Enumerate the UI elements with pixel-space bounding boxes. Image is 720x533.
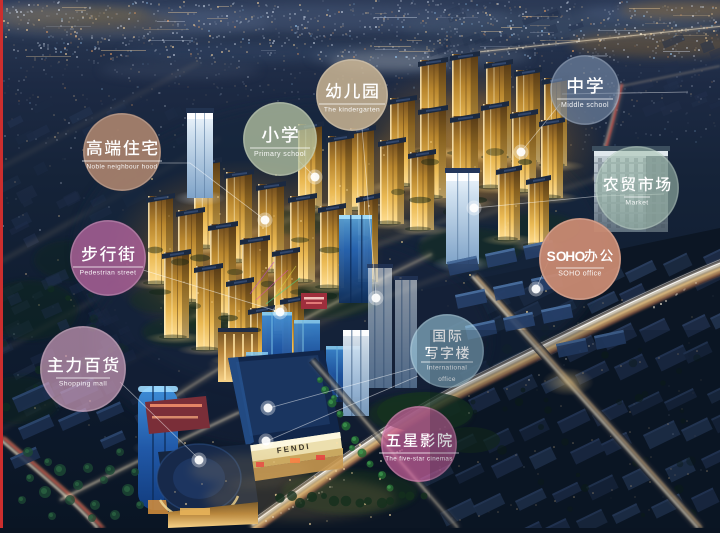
svg-text:Noble neighbour hood: Noble neighbour hood <box>87 164 158 171</box>
svg-text:Pedestrian street: Pedestrian street <box>80 270 137 277</box>
svg-text:Shopping mall: Shopping mall <box>59 381 107 388</box>
svg-text:Market: Market <box>625 200 648 207</box>
svg-text:O: O <box>575 249 586 264</box>
svg-text:S: S <box>547 249 556 264</box>
svg-text:Primary school: Primary school <box>254 151 306 158</box>
svg-text:The kindergarten: The kindergarten <box>324 107 380 114</box>
svg-text:SOHO office: SOHO office <box>558 270 602 277</box>
svg-text:Middle school: Middle school <box>561 102 609 109</box>
